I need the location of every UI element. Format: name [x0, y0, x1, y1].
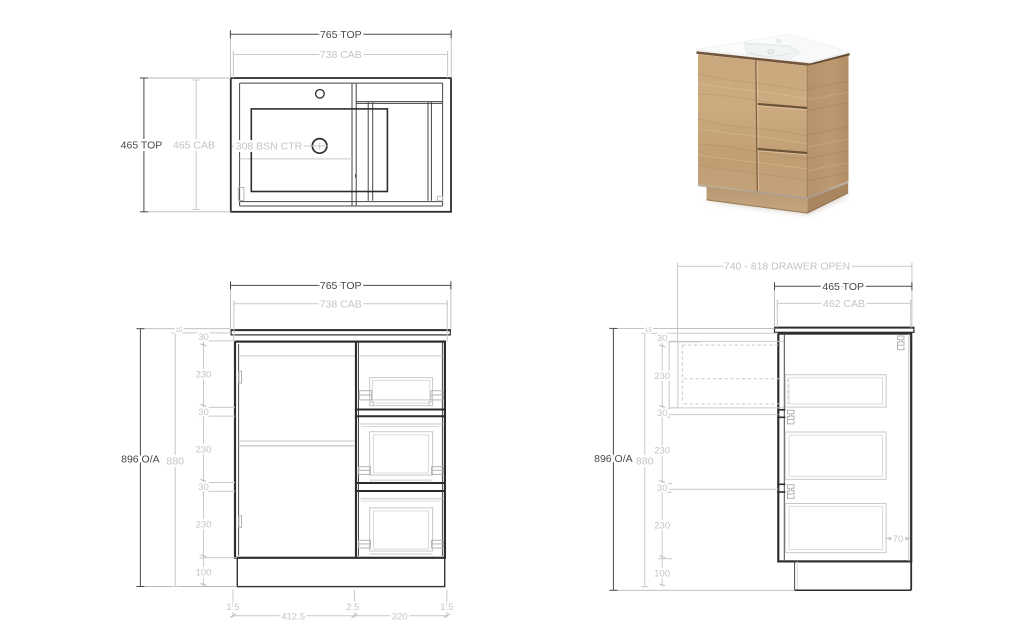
svg-text:230: 230	[196, 520, 212, 531]
svg-text:30: 30	[198, 332, 209, 343]
svg-text:465 TOP: 465 TOP	[822, 281, 864, 293]
svg-text:230: 230	[196, 370, 212, 381]
svg-text:880: 880	[166, 455, 184, 467]
svg-text:230: 230	[196, 445, 212, 456]
svg-text:15: 15	[645, 327, 653, 334]
svg-text:100: 100	[196, 568, 212, 579]
svg-text:30: 30	[657, 333, 668, 344]
svg-text:740 - 818 DRAWER OPEN: 740 - 818 DRAWER OPEN	[724, 261, 850, 273]
svg-text:2.5: 2.5	[346, 602, 359, 613]
svg-text:30: 30	[657, 408, 668, 419]
svg-text:70: 70	[893, 534, 904, 545]
svg-text:765 TOP: 765 TOP	[320, 280, 362, 292]
svg-text:100: 100	[654, 568, 670, 579]
svg-text:30: 30	[657, 483, 668, 494]
svg-text:738 CAB: 738 CAB	[320, 49, 362, 61]
svg-text:308 BSN CTR: 308 BSN CTR	[236, 140, 303, 152]
svg-text:30: 30	[198, 407, 209, 418]
svg-text:15: 15	[175, 327, 183, 334]
svg-text:765 TOP: 765 TOP	[320, 29, 362, 41]
svg-text:896 O/A: 896 O/A	[594, 453, 633, 465]
svg-text:738 CAB: 738 CAB	[320, 298, 362, 310]
svg-text:230: 230	[654, 446, 670, 457]
svg-text:412.5: 412.5	[281, 612, 305, 623]
svg-text:230: 230	[654, 371, 670, 382]
svg-text:320: 320	[392, 612, 408, 623]
svg-text:230: 230	[654, 521, 670, 532]
svg-text:465 CAB: 465 CAB	[173, 139, 215, 151]
svg-text:1.5: 1.5	[440, 602, 453, 613]
svg-text:1.5: 1.5	[226, 602, 239, 613]
svg-text:30: 30	[198, 482, 209, 493]
svg-text:896 O/A: 896 O/A	[121, 454, 160, 466]
svg-text:465 TOP: 465 TOP	[121, 139, 163, 151]
svg-text:462 CAB: 462 CAB	[823, 298, 865, 310]
svg-text:880: 880	[636, 455, 654, 467]
